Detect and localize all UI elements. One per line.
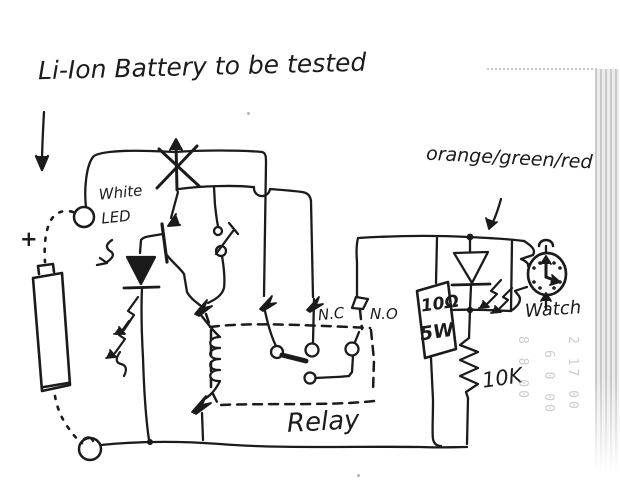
wire-with-hop	[179, 186, 313, 297]
no-contact-label: N.O	[370, 306, 398, 323]
terminal-clip-bottom	[79, 438, 101, 460]
white-led-label-pointer-arrow	[97, 240, 113, 265]
bleedthrough-digits-col2: 6 0 00	[541, 350, 556, 415]
down-arrow-icon	[36, 112, 48, 170]
wire-coil-to-bottom	[202, 413, 203, 440]
x-mark-crossed-wires	[157, 139, 199, 190]
power-resistor-bottom-lead	[431, 358, 441, 446]
battery-cell-symbol	[33, 264, 70, 391]
white-led-light-rays	[106, 297, 138, 376]
scanned-circuit-sketch: Li-Ion Battery to be tested White LED + …	[0, 0, 620, 487]
bleedthrough-digits-col1: 8 8 00	[515, 336, 530, 401]
white-led-symbol	[124, 257, 159, 440]
relay-label: Relay	[286, 406, 360, 440]
resistor-10k-zigzag	[460, 310, 478, 444]
wire-bottom	[101, 442, 467, 448]
terminal-clip-top	[74, 207, 94, 227]
bleedthrough-digits-col3: 2 17 00	[565, 336, 580, 412]
wire-to-power-resistor	[436, 238, 437, 283]
wire-led-right-side	[511, 241, 512, 310]
nc-contact-label: N.C	[317, 305, 345, 325]
battery-negative-lead-dashed	[55, 396, 82, 443]
watch-label: Watch	[524, 298, 582, 323]
white-led-label: White LED	[98, 177, 155, 230]
led-colors-pointer-arrow	[486, 199, 501, 229]
wire-led-bottom	[452, 310, 511, 311]
push-button-switch	[208, 187, 238, 303]
wire-no-to-right	[357, 236, 524, 297]
battery-polarity-label: +	[20, 227, 38, 251]
battery-positive-lead-dashed	[45, 211, 73, 262]
